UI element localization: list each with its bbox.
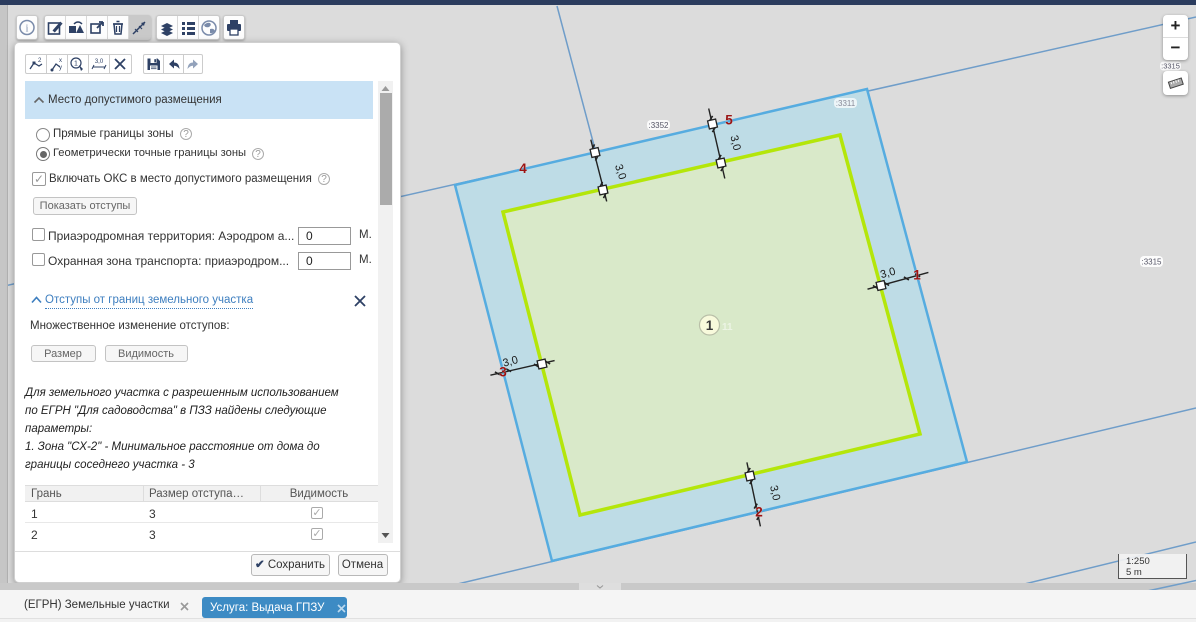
svg-text:1: 1: [706, 318, 714, 333]
svg-text:y: y: [59, 65, 62, 71]
svg-text:3: 3: [499, 364, 507, 379]
svg-text:1: 1: [913, 267, 921, 282]
svg-text:2: 2: [38, 58, 42, 64]
svg-text::3315: :3315: [1161, 62, 1180, 71]
svg-text:11: 11: [722, 322, 733, 333]
svg-text:x: x: [59, 58, 62, 64]
svg-text:1: 1: [74, 61, 78, 68]
svg-text:5: 5: [725, 112, 733, 127]
svg-text:4: 4: [519, 161, 527, 176]
svg-text::3315: :3315: [1141, 258, 1162, 267]
svg-text:i: i: [26, 24, 29, 35]
svg-text::3311: :3311: [836, 99, 856, 108]
svg-text:3,0: 3,0: [95, 59, 104, 65]
svg-text::3352: :3352: [648, 121, 669, 130]
svg-text:2: 2: [755, 504, 763, 519]
